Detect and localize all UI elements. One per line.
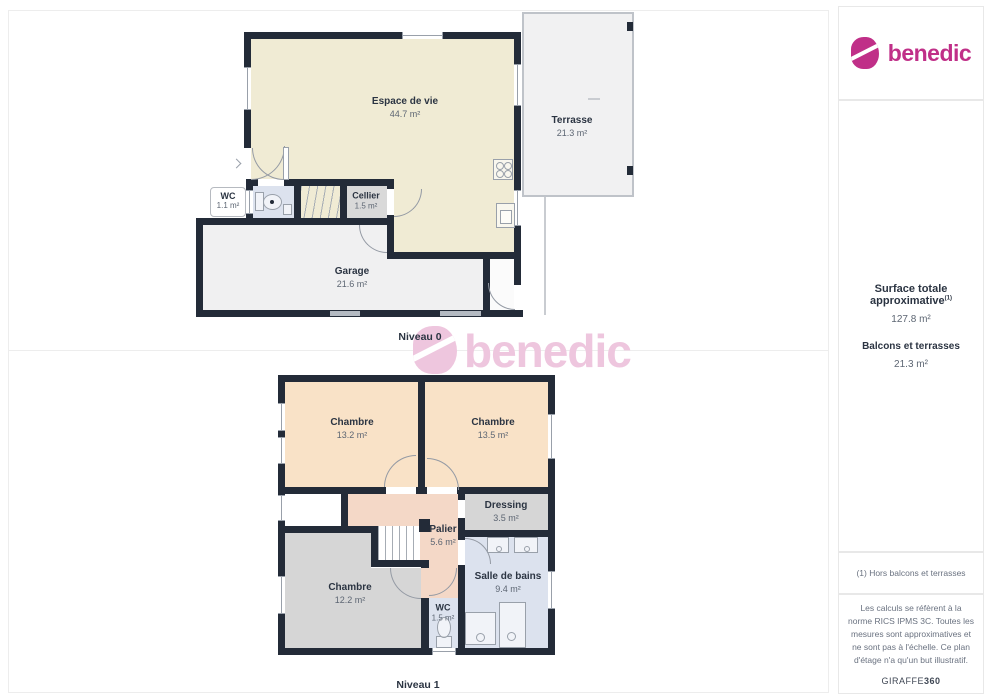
room-garage-right — [392, 259, 483, 310]
cooktop-burner — [496, 170, 504, 178]
room-label-wc-1: WC 1.5 m² — [432, 602, 455, 623]
stairs-level1 — [378, 526, 420, 560]
surface-total-value: 127.8 m² — [891, 314, 930, 325]
surface-summary: Surface totale approximative(1) 127.8 m²… — [839, 101, 983, 551]
legal-disclaimer: Les calculs se réfèrent à la norme RICS … — [839, 595, 983, 693]
room-label-dressing: Dressing 3.5 m² — [485, 500, 528, 524]
wall-stub — [419, 519, 430, 532]
sidebar-surface-box: Surface totale approximative(1) 127.8 m²… — [838, 100, 984, 552]
sink-drain — [524, 546, 530, 552]
window — [278, 495, 285, 521]
wall — [371, 526, 378, 567]
wall — [421, 560, 429, 568]
room-label-garage: Garage 21.6 m² — [335, 266, 369, 290]
wall — [246, 179, 258, 186]
benedic-logo-text: benedic — [888, 40, 971, 67]
room-label-wc0-box: WC 1.1 m² — [210, 187, 246, 217]
room-label-salle-de-bains: Salle de bains 9.4 m² — [475, 571, 542, 595]
sidebar-legal-box: Les calculs se réfèrent à la norme RICS … — [838, 594, 984, 694]
benedic-watermark-text: benedic — [464, 324, 631, 378]
room-label-chambre-1: Chambre 13.2 m² — [330, 417, 373, 441]
garage-door-panel — [330, 311, 360, 316]
window — [278, 403, 285, 431]
toilet-dot — [270, 200, 274, 204]
legal-text: Les calculs se réfèrent à la norme RICS … — [848, 602, 974, 668]
stairs-level0 — [301, 186, 340, 218]
balconies-label: Balcons et terrasses — [862, 341, 960, 352]
window — [548, 414, 555, 459]
room-label-espace-de-vie: Espace de vie 44.7 m² — [372, 96, 438, 120]
wc-basin — [283, 204, 292, 215]
window — [246, 190, 253, 214]
balconies-value: 21.3 m² — [894, 359, 928, 370]
bathtub-drain — [507, 632, 516, 641]
wall — [278, 648, 555, 655]
window — [278, 437, 285, 464]
room-label-palier: Palier 5.6 m² — [429, 524, 456, 548]
benedic-logo-icon — [851, 37, 879, 69]
wall — [458, 565, 465, 648]
wall — [416, 487, 427, 494]
terrace-post — [627, 166, 633, 175]
wall — [458, 530, 548, 537]
surface-total-title: Surface totale approximative(1) — [839, 283, 983, 307]
wall — [387, 179, 394, 189]
level0-title: Niveau 0 — [398, 331, 441, 343]
cooktop-burner — [504, 170, 512, 178]
wall — [457, 487, 548, 494]
shower-drain — [476, 633, 485, 642]
void-area — [285, 494, 341, 526]
wall — [196, 218, 203, 317]
sink-drain — [496, 546, 502, 552]
wall — [387, 252, 521, 259]
window — [548, 571, 555, 609]
sidebar-footnote-box: (1) Hors balcons et terrasses — [838, 552, 984, 594]
wall — [246, 32, 521, 39]
garage-door-panel — [440, 311, 481, 316]
cooktop-burner — [496, 162, 504, 170]
floorplan-page: benedic — [0, 0, 990, 700]
bathtub — [499, 602, 526, 648]
window — [278, 576, 285, 614]
kitchen-sink-basin — [500, 210, 512, 224]
room-label-chambre-2: Chambre 13.5 m² — [471, 417, 514, 441]
footnote-marker: (1) — [945, 295, 952, 301]
wall — [278, 375, 555, 382]
wall — [285, 526, 371, 533]
wall — [458, 494, 465, 500]
wall — [284, 179, 394, 186]
room-label-cellier: Cellier 1.5 m² — [352, 190, 380, 211]
room-label-terrasse: Terrasse 21.3 m² — [552, 115, 593, 139]
wall — [418, 382, 425, 487]
cooktop-burner — [504, 162, 512, 170]
window — [514, 64, 521, 106]
window — [514, 190, 521, 226]
path-outline — [544, 197, 546, 315]
window — [244, 67, 251, 110]
window — [432, 648, 456, 655]
window — [402, 32, 443, 39]
wall — [196, 218, 394, 225]
room-label-chambre-3: Chambre 12.2 m² — [328, 582, 371, 606]
giraffe360-credit: GIRAFFE360 — [881, 676, 940, 686]
sidebar-logo-box: benedic — [838, 6, 984, 100]
wall — [421, 598, 429, 648]
room-terrasse — [522, 12, 634, 197]
terrace-post — [627, 22, 633, 31]
level1-title: Niveau 1 — [396, 679, 439, 691]
footnote-text: (1) Hors balcons et terrasses — [839, 553, 983, 593]
wall — [285, 487, 386, 494]
terrace-step-mark — [588, 98, 600, 100]
brand-logo: benedic — [839, 7, 983, 99]
